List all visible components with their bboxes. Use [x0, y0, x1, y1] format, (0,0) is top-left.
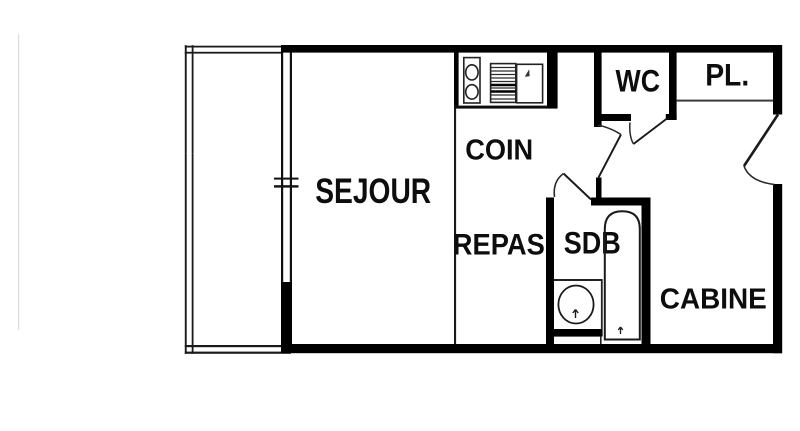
svg-text:REPAS: REPAS [453, 228, 545, 261]
svg-text:COIN: COIN [465, 135, 533, 167]
svg-text:SEJOUR: SEJOUR [315, 171, 431, 211]
svg-text:WC: WC [616, 63, 661, 99]
svg-text:PL.: PL. [705, 57, 749, 93]
svg-text:CABINE: CABINE [660, 283, 767, 315]
svg-text:SDB: SDB [564, 226, 621, 261]
